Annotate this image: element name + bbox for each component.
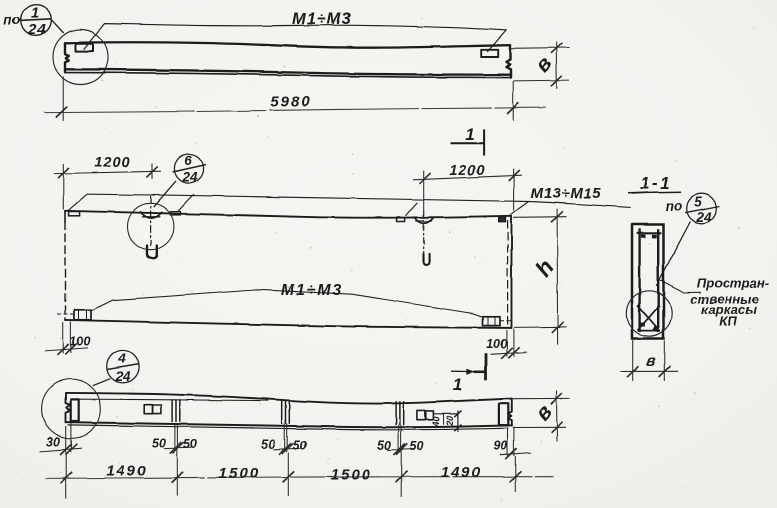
svg-text:100: 100 (70, 335, 91, 349)
svg-text:5980: 5980 (270, 94, 311, 111)
svg-text:24: 24 (27, 21, 47, 38)
svg-text:КП: КП (719, 314, 737, 329)
svg-text:50: 50 (410, 440, 424, 454)
svg-text:5: 5 (694, 195, 702, 210)
svg-text:100: 100 (486, 337, 507, 351)
svg-text:1: 1 (465, 125, 474, 144)
svg-text:Простран-: Простран- (697, 276, 770, 291)
svg-text:1200: 1200 (449, 163, 485, 179)
svg-text:1200: 1200 (94, 155, 130, 171)
svg-text:1: 1 (30, 6, 38, 22)
svg-text:24: 24 (695, 210, 712, 225)
svg-text:20: 20 (445, 416, 455, 427)
svg-text:24: 24 (181, 170, 198, 185)
svg-text:50: 50 (377, 439, 391, 453)
svg-text:в: в (646, 353, 655, 370)
svg-text:6: 6 (184, 153, 192, 168)
svg-text:50: 50 (183, 438, 197, 452)
svg-text:30: 30 (46, 435, 60, 449)
svg-text:М1÷М3: М1÷М3 (281, 282, 343, 299)
svg-text:50: 50 (293, 439, 307, 453)
svg-text:1490: 1490 (441, 464, 482, 481)
svg-text:90: 90 (494, 439, 508, 453)
svg-text:1-1: 1-1 (640, 174, 672, 193)
svg-text:4: 4 (117, 351, 126, 366)
svg-text:М1÷М3: М1÷М3 (292, 10, 352, 28)
svg-text:1500: 1500 (218, 465, 259, 482)
svg-text:по: по (666, 199, 683, 214)
svg-text:40: 40 (431, 416, 441, 427)
svg-text:по: по (4, 13, 21, 28)
svg-text:1: 1 (453, 375, 462, 394)
svg-text:1500: 1500 (331, 467, 372, 484)
svg-text:50: 50 (152, 437, 166, 451)
svg-text:М13÷М15: М13÷М15 (531, 185, 601, 202)
svg-text:50: 50 (261, 438, 275, 452)
svg-text:1490: 1490 (106, 463, 147, 480)
svg-text:24: 24 (114, 369, 131, 384)
